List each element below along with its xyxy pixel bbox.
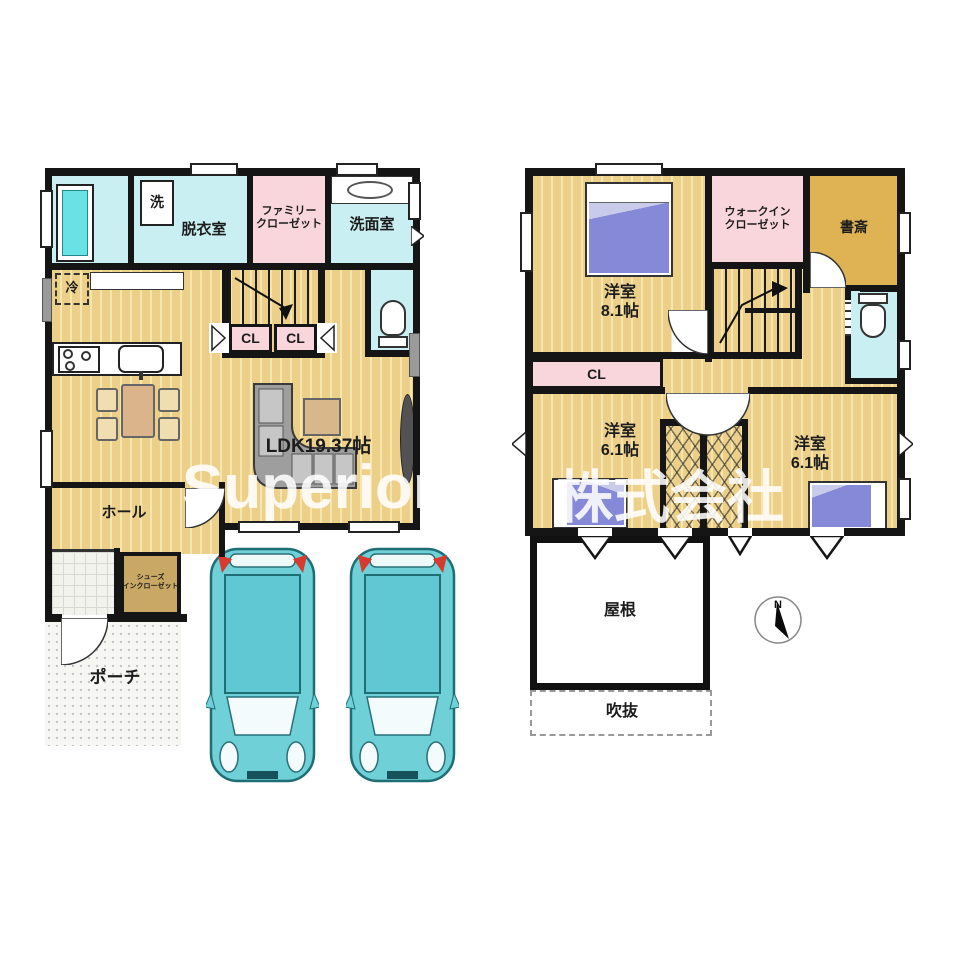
bedroom1-label: 洋室 8.1帖 bbox=[572, 284, 668, 322]
window bbox=[336, 163, 378, 176]
void-label: 吹抜 bbox=[584, 703, 660, 722]
wall bbox=[45, 263, 420, 270]
window bbox=[40, 190, 53, 248]
closet-cl-1-label: CL bbox=[241, 330, 260, 347]
entry-door-arc bbox=[61, 618, 108, 665]
door-arc bbox=[810, 252, 846, 288]
kitchen-sink bbox=[118, 345, 164, 373]
hall-label: ホール bbox=[85, 504, 163, 522]
laundry-label: 洗 bbox=[140, 194, 174, 211]
vent-arrow-icon bbox=[411, 226, 424, 246]
window bbox=[520, 212, 533, 272]
dining-table bbox=[121, 384, 155, 438]
wall bbox=[803, 176, 810, 293]
vanity-sink bbox=[347, 181, 393, 199]
bed bbox=[808, 481, 887, 531]
compass-icon: N bbox=[750, 592, 806, 648]
wall bbox=[845, 285, 905, 291]
burner-icon bbox=[65, 361, 75, 371]
window bbox=[40, 430, 53, 488]
vent-arrow-icon bbox=[899, 432, 913, 456]
burner-icon bbox=[63, 349, 73, 359]
wall bbox=[845, 378, 905, 384]
window bbox=[898, 340, 911, 370]
dressing-room-label: 脱衣室 bbox=[163, 221, 245, 239]
toilet-bowl bbox=[860, 304, 886, 338]
double-door-arc bbox=[666, 393, 750, 436]
closet-cl-2f-label: CL bbox=[587, 366, 606, 383]
car-top-view bbox=[206, 545, 319, 786]
wall bbox=[107, 614, 187, 622]
side-table bbox=[303, 398, 341, 436]
kitchen-cupboard bbox=[90, 272, 184, 290]
study-label: 書斎 bbox=[816, 219, 892, 236]
roof-label: 屋根 bbox=[582, 602, 658, 621]
wall bbox=[128, 176, 134, 263]
folding-door-icon bbox=[317, 323, 337, 353]
chair bbox=[96, 417, 118, 441]
family-closet-label: ファミリー クローゼット bbox=[251, 205, 327, 231]
entry-tile-floor bbox=[52, 552, 114, 615]
closet-cl-2-label: CL bbox=[286, 330, 305, 347]
chair bbox=[158, 388, 180, 412]
entry-step-line bbox=[52, 549, 116, 552]
wall bbox=[795, 263, 802, 359]
awning-window-icon bbox=[728, 536, 752, 556]
wall bbox=[525, 387, 665, 394]
watermark-left: Superior bbox=[182, 452, 437, 523]
bathtub-water bbox=[62, 190, 88, 256]
shoe-closet-label: シューズ インクローゼット bbox=[122, 573, 179, 591]
toilet-tank bbox=[858, 293, 888, 304]
stairs-direction-arrow bbox=[712, 269, 795, 352]
floor-plan-canvas: 洗 脱衣室 ファミリー クローゼット 洗面室 冷 CL CL bbox=[0, 0, 960, 960]
door-arc bbox=[668, 310, 708, 354]
burner-icon bbox=[81, 351, 91, 361]
porch-label: ポーチ bbox=[77, 668, 153, 688]
window-shutter bbox=[409, 333, 420, 377]
bed bbox=[585, 182, 673, 277]
window bbox=[190, 163, 238, 176]
bed-cover bbox=[812, 485, 871, 527]
window bbox=[898, 478, 911, 520]
fridge-label: 冷 bbox=[55, 280, 89, 295]
bed-cover bbox=[589, 202, 669, 273]
wall bbox=[705, 352, 802, 359]
window-shutter bbox=[42, 278, 52, 322]
closet-cl-2: CL bbox=[274, 324, 317, 353]
vent-arrow-icon bbox=[512, 432, 526, 456]
toilet-bowl bbox=[380, 300, 406, 336]
wall bbox=[525, 168, 905, 176]
stairs-direction-arrow bbox=[229, 270, 318, 324]
door-ticks bbox=[845, 300, 851, 336]
chair bbox=[96, 388, 118, 412]
wall bbox=[52, 482, 185, 488]
faucet-icon bbox=[139, 371, 143, 380]
awning-window-icon bbox=[810, 536, 844, 560]
folding-door-icon bbox=[209, 323, 229, 353]
watermark-right: 株式会社 bbox=[556, 452, 784, 534]
window bbox=[898, 212, 911, 254]
wall bbox=[222, 352, 325, 358]
wall bbox=[748, 387, 905, 394]
window-gap bbox=[810, 528, 844, 536]
awning-window-icon bbox=[658, 536, 692, 560]
wall bbox=[114, 548, 120, 618]
bathtub bbox=[56, 184, 94, 262]
window bbox=[408, 182, 421, 220]
chair bbox=[158, 417, 180, 441]
awning-window-icon bbox=[578, 536, 612, 560]
washroom-label: 洗面室 bbox=[333, 216, 411, 234]
closet-cl-2f: CL bbox=[530, 359, 663, 389]
closet-cl-1: CL bbox=[229, 324, 272, 353]
window bbox=[595, 163, 663, 176]
toilet-tank bbox=[378, 336, 408, 348]
car-top-view bbox=[346, 545, 459, 786]
walk-in-closet-label: ウォークイン クローゼット bbox=[710, 206, 805, 232]
wall bbox=[365, 263, 371, 352]
